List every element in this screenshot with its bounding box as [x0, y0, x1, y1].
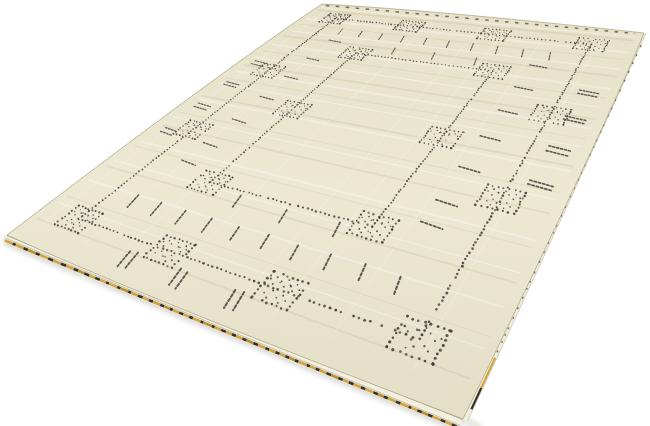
rug-face: [7, 4, 644, 419]
rug-photo: [0, 0, 650, 426]
photo-canvas: [0, 0, 650, 426]
